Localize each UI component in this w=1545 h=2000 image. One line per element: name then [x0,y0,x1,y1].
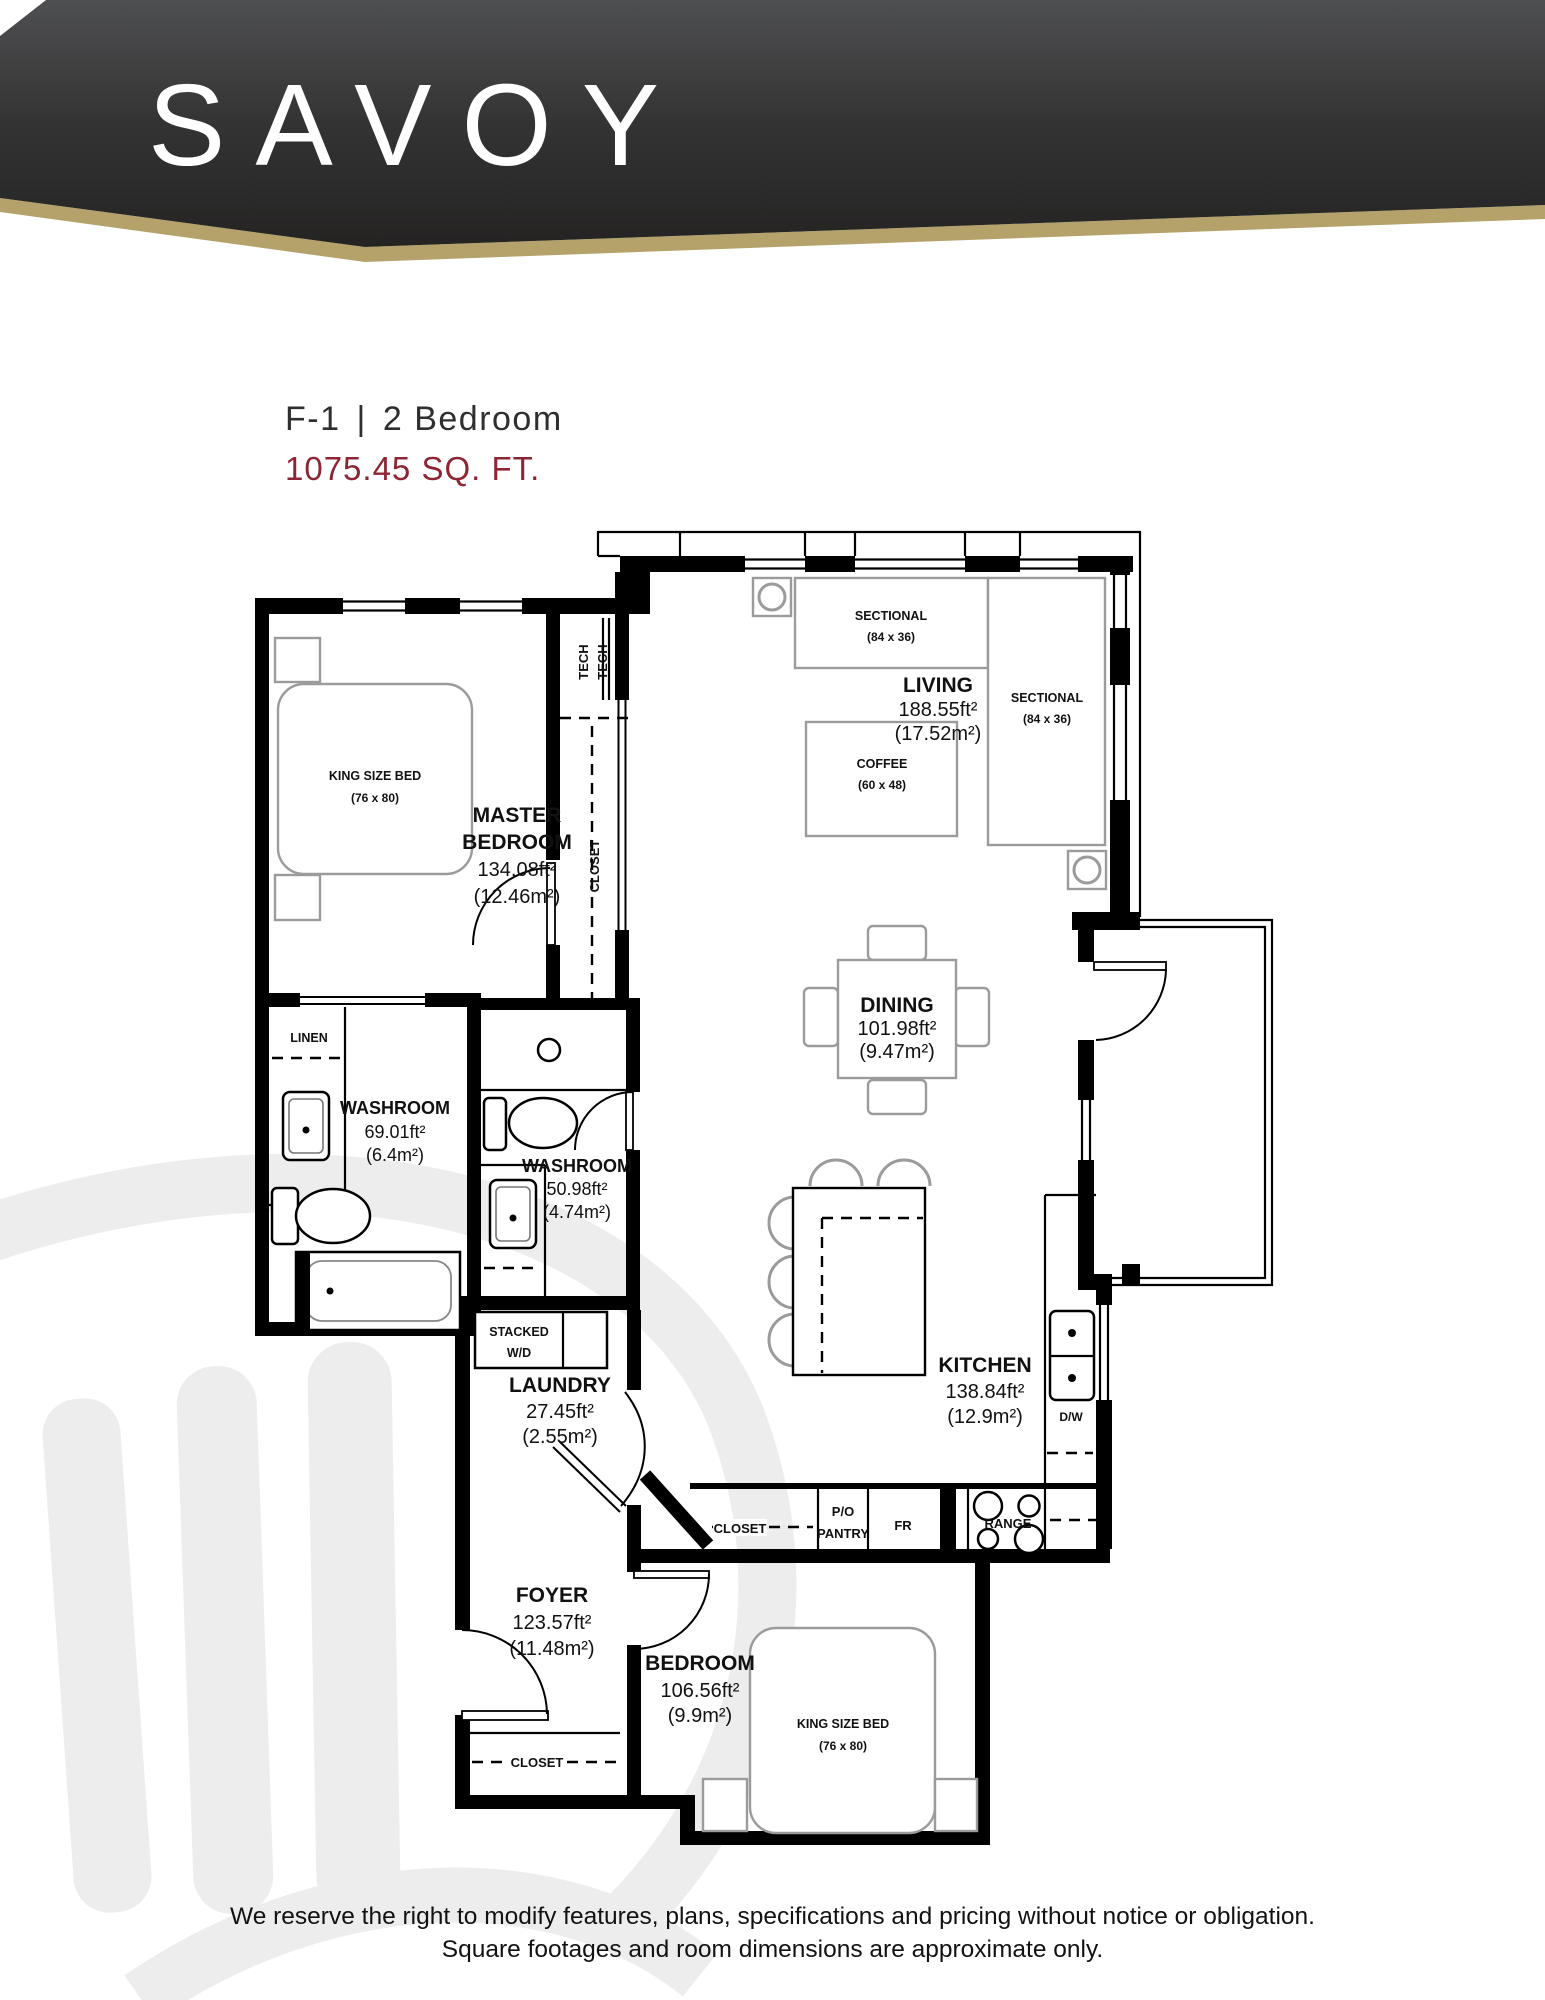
label-closet-master: CLOSET [587,840,602,893]
label-dining-name: DINING [860,994,934,1017]
toilet-tank-washroom1 [272,1188,298,1244]
label-foyer-m: (11.48m²) [509,1638,594,1660]
label-sectional-v-dim: (84 x 36) [1023,712,1071,726]
label-foyer-name: FOYER [516,1584,588,1607]
sectional-sofa-horizontal [795,578,988,668]
label-washroom1-name: WASHROOM [340,1098,450,1118]
label-master-name2: BEDROOM [462,831,572,854]
bedroom-door-swing [634,1574,709,1649]
toilet-tank-washroom2 [484,1098,506,1150]
dining-chair [955,988,989,1046]
nightstand [935,1779,977,1831]
toilet-washroom2 [509,1098,577,1148]
label-range: RANGE [985,1516,1032,1531]
label-master-name1: MASTER [473,804,562,827]
range-burner [978,1529,998,1549]
stool [769,1256,795,1308]
stacked-washer-dryer [475,1312,607,1368]
label-washroom2-m: (4.74m²) [543,1202,611,1222]
washroom2-door-leaf [626,1092,633,1150]
label-closet-hall: CLOSET [714,1521,767,1536]
dining-chair [868,1080,926,1114]
label-wd: W/D [507,1346,531,1360]
stool [769,1197,795,1249]
label-washroom2-ft: 50.98ft² [546,1179,607,1199]
label-living-m: (17.52m²) [895,723,982,745]
label-kitchen-ft: 138.84ft² [946,1381,1025,1403]
label-tech-1: TECH [576,644,591,679]
nightstand [703,1779,747,1831]
nightstand [275,875,320,920]
label-living-ft: 188.55ft² [899,699,978,721]
label-linen: LINEN [290,1031,328,1045]
balcony-door-leaf [1094,962,1166,970]
disclaimer-line1: We reserve the right to modify features,… [0,1900,1545,1933]
label-kingbed1-dim: (76 x 80) [351,791,399,805]
label-foyer-ft: 123.57ft² [513,1612,592,1634]
label-coffee: COFFEE [857,757,908,771]
label-living-name: LIVING [903,674,973,697]
washroom2-door-swing [575,1092,633,1150]
label-coffee-dim: (60 x 48) [858,778,906,792]
label-stacked: STACKED [489,1325,549,1339]
label-washroom1-m: (6.4m²) [366,1145,424,1165]
label-master-ft: 134.08ft² [478,859,557,881]
stool [878,1160,930,1186]
bedroom-door-leaf [634,1571,709,1578]
label-kitchen-name: KITCHEN [938,1354,1031,1377]
label-bedroom2-m: (9.9m²) [668,1705,732,1727]
shower-drain [538,1039,560,1061]
label-closet-foyer: CLOSET [511,1755,564,1770]
kitchen-island [793,1188,925,1375]
toilet-washroom1 [296,1189,370,1243]
entry-door-leaf [462,1711,548,1720]
label-dining-m: (9.47m²) [859,1041,935,1063]
label-sectional-v: SECTIONAL [1011,691,1084,705]
floorplan-flyer-page: SAVOY F-1|2 Bedroom 1075.45 SQ. FT. [0,0,1545,2000]
label-laundry-m: (2.55m²) [522,1426,598,1448]
label-kingbed2-dim: (76 x 80) [819,1739,867,1753]
label-washroom1-ft: 69.01ft² [364,1122,425,1142]
nightstand [275,638,320,682]
label-dining-ft: 101.98ft² [858,1018,937,1040]
dining-chair [804,988,838,1046]
label-po: P/O [832,1504,854,1519]
label-kingbed2: KING SIZE BED [797,1717,889,1731]
label-kingbed1: KING SIZE BED [329,769,421,783]
label-laundry-ft: 27.45ft² [526,1401,594,1423]
disclaimer: We reserve the right to modify features,… [0,1900,1545,1966]
label-pantry: PANTRY [817,1526,869,1541]
disclaimer-line2: Square footages and room dimensions are … [0,1933,1545,1966]
stool [769,1314,795,1366]
label-laundry-name: LAUNDRY [509,1374,611,1397]
balcony-door-swing [1096,970,1166,1040]
label-kitchen-m: (12.9m²) [947,1406,1023,1428]
label-master-m: (12.46m²) [474,886,561,908]
range-burner [1019,1496,1040,1517]
laundry-door-swing [621,1392,645,1506]
laundry-door-leaf [553,1441,626,1512]
label-tech-2: TECH [595,644,610,679]
label-washroom2-name: WASHROOM [522,1156,632,1176]
dining-chair [868,926,926,960]
label-sectional-h: SECTIONAL [855,609,928,623]
bathtub [296,1252,460,1330]
label-fridge: FR [894,1518,912,1533]
stool [810,1160,862,1186]
label-bedroom2-name: BEDROOM [645,1652,755,1675]
floorplan-drawing: MASTER BEDROOM 134.08ft² (12.46m²) LIVIN… [0,0,1545,2000]
label-bedroom2-ft: 106.56ft² [661,1680,740,1702]
label-sectional-h-dim: (84 x 36) [867,630,915,644]
balcony-railing [1094,920,1272,1285]
gas-bib-icon [1122,1264,1140,1284]
label-dishwasher: D/W [1059,1410,1083,1424]
